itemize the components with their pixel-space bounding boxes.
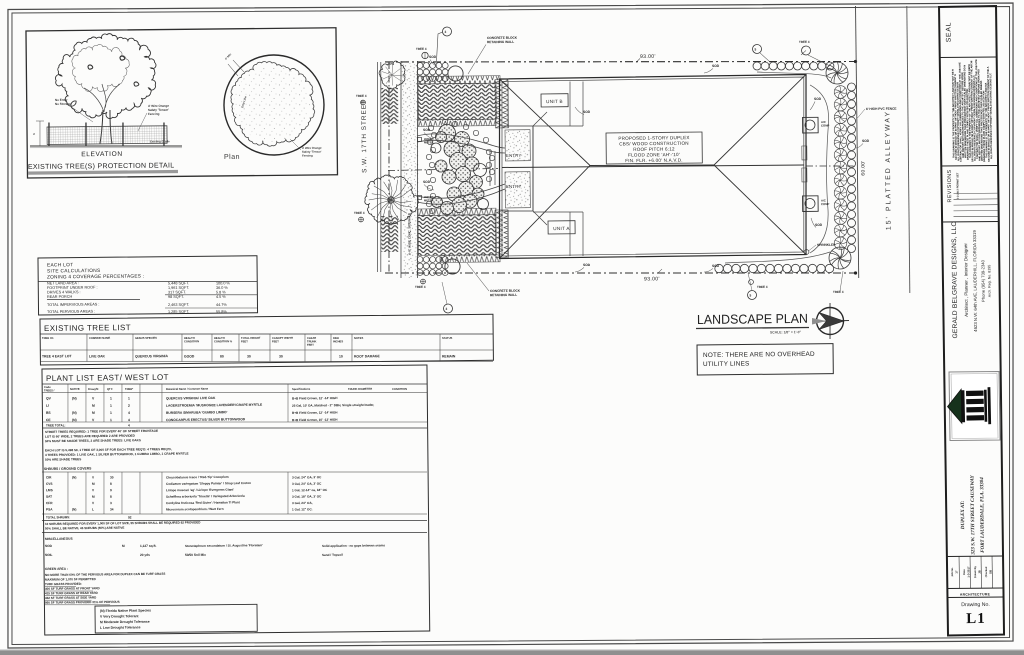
svg-text:2: 2 [128,404,130,408]
svg-text:BS: BS [46,411,51,415]
svg-text:60.00': 60.00' [860,160,866,175]
svg-text:Date: Date [962,569,966,575]
svg-text:CONDITION: CONDITION [184,339,199,343]
svg-text:Microsorum scolopendrium / War: Microsorum scolopendrium / Wart Fern [166,507,224,512]
svg-text:1,285 SQFT.: 1,285 SQFT. [168,310,189,314]
svg-text:1-3-2017: 1-3-2017 [966,566,970,578]
svg-text:CONDITION: CONDITION [392,387,407,391]
svg-text:CIR: CIR [46,475,52,479]
svg-text:SOIL: SOIL [45,553,53,557]
svg-text:36.0 %: 36.0 % [216,286,228,290]
svg-text:ELEVATION: ELEVATION [81,151,123,158]
svg-text:SHRUBS / GROUND COVERS: SHRUBS / GROUND COVERS [44,467,92,472]
svg-text:DUPLEX AT:: DUPLEX AT: [961,500,966,530]
svg-text:93.00': 93.00' [640,54,656,60]
svg-text:17: 17 [954,570,958,574]
svg-text:Specifications: Specifications [292,387,311,391]
svg-text:B+B Field Grown, 12' -14' HIGH: B+B Field Grown, 12' -14' HIGH [292,410,338,414]
svg-text:CONOCARPUS ERECTUS/ SILVER BUT: CONOCARPUS ERECTUS/ SILVER BUTTONWOOD [166,417,246,422]
svg-text:B+B Field Grown, 12' -14' HIGH: B+B Field Grown, 12' -14' HIGH [292,396,338,400]
svg-text:1 Gal, 12-14" oa, 18" OC: 1 Gal, 12-14" oa, 18" OC [292,488,328,492]
svg-text:REMAIN: REMAIN [442,354,456,358]
svg-text:SCALE: 1/8" = 1'-0": SCALE: 1/8" = 1'-0" [770,330,801,334]
svg-text:(N): (N) [72,411,77,415]
svg-text:SOD: SOD [45,544,53,548]
svg-text:CANOPY WIDTH: CANOPY WIDTH [272,336,293,340]
svg-text:SOD: SOD [423,180,431,184]
svg-text:3: 3 [444,30,446,34]
svg-text:METER: METER [424,198,434,202]
svg-text:RETAINING WALL: RETAINING WALL [487,40,514,44]
svg-text:5.8 %: 5.8 % [216,290,226,294]
svg-text:Drawing No.: Drawing No. [961,602,990,608]
svg-text:55.8%: 55.8% [216,310,227,314]
svg-text:323 S.W. 17TH STREET CAUSEWAY: 323 S.W. 17TH STREET CAUSEWAY [971,474,977,555]
svg-text:1 Gal, 12" OC.: 1 Gal, 12" OC. [292,507,313,511]
svg-text:M: M [92,482,95,486]
svg-text:1: 1 [110,418,112,422]
svg-text:COMP: COMP [821,124,830,128]
svg-text:1: 1 [110,396,112,400]
svg-text:ROOT DAMAGE: ROOT DAMAGE [354,354,381,358]
svg-text:Fencing: Fencing [302,153,313,157]
svg-text:REAR PORCH: REAR PORCH [47,295,73,299]
svg-text:1,961 SQFT.: 1,961 SQFT. [168,286,189,290]
svg-text:NOTES: NOTES [354,336,364,340]
svg-text:1,127 sq.ft.: 1,127 sq.ft. [140,544,157,548]
svg-text:15' PLATTED ALLEYWAY: 15' PLATTED ALLEYWAY [884,110,892,230]
svg-text:Sand / Topsoil: Sand / Topsoil [322,553,343,557]
svg-text:30: 30 [110,475,114,479]
svg-text:6' HIGH PVC FENCE: 6' HIGH PVC FENCE [866,107,897,111]
svg-text:(N): (N) [72,507,76,511]
svg-text:Liriope muscari 'ag' / Liriope: Liriope muscari 'ag' / Liriope 'Evergree… [166,488,234,493]
svg-text:Checked: Checked [984,566,988,577]
svg-text:30: 30 [279,354,283,358]
svg-text:SOD: SOD [423,128,431,132]
svg-text:2-2-2017 PERMIT SET: 2-2-2017 PERMIT SET [955,172,959,199]
svg-text:SOD: SOD [862,139,870,143]
svg-text:TOTAL PERVIOUS AREAS :: TOTAL PERVIOUS AREAS : [47,309,95,314]
svg-text:TOTAL IMPERVIOUS AREAS :: TOTAL IMPERVIOUS AREAS : [47,302,99,307]
svg-text:1: 1 [110,411,112,415]
svg-text:ENTRY: ENTRY [506,184,522,189]
svg-text:COMP: COMP [821,202,830,206]
svg-text:SOD: SOD [583,263,591,267]
svg-text:LMS: LMS [46,488,53,492]
svg-text:GENUS SPECIES: GENUS SPECIES [135,336,157,340]
svg-text:FORT LAUDERDALE, FLA. 33304: FORT LAUDERDALE, FLA. 33304 [980,477,986,553]
svg-text:3 Gal, 18" OA, 3' OC: 3 Gal, 18" OA, 3' OC [292,494,322,498]
svg-text:34: 34 [110,507,114,511]
svg-text:M: M [122,544,125,548]
svg-text:GERALD BELGRAVE DESIGNS, LLC: GERALD BELGRAVE DESIGNS, LLC [951,222,959,339]
svg-text:25 Gal, 10' OA, Matched - 2" D: 25 Gal, 10' OA, Matched - 2" DBH, Single… [292,403,374,408]
svg-text:TREE*: TREE* [125,387,134,391]
svg-text:INCHES: INCHES [333,339,343,343]
svg-text:BURSERA SIMARUBA 'GUMBO LIMBO': BURSERA SIMARUBA 'GUMBO LIMBO' [166,410,228,415]
svg-text:NATIVE: NATIVE [70,387,80,391]
svg-text:Fencing: Fencing [148,112,160,116]
svg-text:L: L [92,507,94,511]
svg-text:3: 3 [110,501,112,505]
svg-text:100.0 %: 100.0 % [216,281,231,285]
svg-text:TREES /: TREES / [44,388,55,392]
svg-text:(N) Florida Native Plant Spec: (N) Florida Native Plant Species [100,608,151,613]
svg-text:10: 10 [339,354,343,358]
svg-text:FEET: FEET [307,343,314,347]
svg-text:20 yds: 20 yds [140,553,150,557]
svg-text:CBS/ WOOD CONSTRUCTION: CBS/ WOOD CONSTRUCTION [619,141,689,147]
svg-text:44.7%: 44.7% [216,303,227,307]
svg-text:ARCHITECTURE: ARCHITECTURE [960,592,991,596]
svg-text:COMMON NAME: COMMON NAME [89,336,110,340]
svg-text:TREE 4: TREE 4 [354,211,365,215]
svg-text:STATUS: STATUS [442,336,453,340]
svg-text:Existing Grade: Existing Grade [150,139,170,143]
svg-text:SPRINKLER: SPRINKLER [817,243,836,247]
svg-text:SOD: SOD [815,223,823,227]
svg-text:ENTRY: ENTRY [506,153,522,158]
svg-text:SEAL: SEAL [945,22,952,43]
svg-text:4: 4 [128,411,130,415]
svg-text:TREE 4: TREE 4 [415,285,426,289]
svg-text:Phone (954) 739-2340: Phone (954) 739-2340 [980,259,985,302]
svg-text:Stenotaphrum secundatum / St.: Stenotaphrum secundatum / St. Augustine … [185,543,263,548]
svg-text:M: M [92,404,95,408]
svg-text:GOOD: GOOD [184,354,195,358]
svg-text:SITE CALCULATIONS: SITE CALCULATIONS [47,268,101,275]
svg-text:8: 8 [110,495,112,499]
svg-text:ZONING 4 COVERAGE PERCENTAGES: ZONING 4 COVERAGE PERCENTAGES : [47,273,144,280]
svg-text:4: 4 [128,418,130,422]
svg-text:QTY.: QTY. [107,387,113,391]
svg-text:EXISTING TREE LIST: EXISTING TREE LIST [44,323,131,333]
svg-text:Schefflera arboricola 'Trinett: Schefflera arboricola 'Trinette' / Varie… [166,494,245,499]
svg-text:Plan: Plan [224,154,240,161]
svg-text:8: 8 [110,482,112,486]
svg-text:(N): (N) [72,475,76,479]
svg-text:98 SQFT.: 98 SQFT. [168,295,184,299]
svg-text:TREE 4: TREE 4 [416,47,427,51]
svg-text:FEET: FEET [272,339,279,343]
svg-text:(N): (N) [72,418,77,422]
svg-text:50% ARE SHADE TREES: 50% ARE SHADE TREES [45,457,81,461]
svg-text:L Low Drought Tolerance: L Low Drought Tolerance [100,625,141,629]
svg-text:TREE 4: TREE 4 [757,285,768,289]
svg-text:MAXIMUM OF 1,070 SF PERMITTED: MAXIMUM OF 1,070 SF PERMITTED [45,577,97,582]
svg-text:3 Gal, 24" OA, 3' OC: 3 Gal, 24" OA, 3' OC [292,482,322,486]
svg-text:SOD: SOD [712,64,720,68]
svg-text:50/50 Soil Mix: 50/50 Soil Mix [185,553,206,557]
svg-text:L1: L1 [966,611,986,627]
svg-text:3 Gal, 24" OA, 3' OC: 3 Gal, 24" OA, 3' OC [292,475,322,479]
svg-text:TOTAL SHRUBS:: TOTAL SHRUBS: [46,515,70,519]
svg-text:QUERCUS VIRGINIA/ LIVE OAK: QUERCUS VIRGINIA/ LIVE OAK [166,396,216,401]
svg-text:TREE 4: TREE 4 [799,40,810,44]
svg-text:M: M [92,495,95,499]
svg-text:TREE TOTAL:: TREE TOTAL: [46,423,66,427]
svg-text:PLANT LIST EAST/ WEST LOT: PLANT LIST EAST/ WEST LOT [46,373,169,383]
svg-text:UNIT B: UNIT B [546,99,563,104]
svg-text:QV: QV [46,396,52,400]
svg-text:4'-0" WIDE CONC. SIDEWALK: 4'-0" WIDE CONC. SIDEWALK [407,212,411,255]
svg-text:CE: CE [46,418,51,422]
svg-text:FEET: FEET [241,339,248,343]
svg-text:METER: METER [424,140,434,144]
svg-text:92: 92 [128,515,132,519]
svg-text:3: 3 [445,307,447,311]
svg-text:MISCELLANEOUS: MISCELLANEOUS [45,537,73,541]
svg-text:TREE 4: TREE 4 [356,94,367,98]
svg-text:Architect , Planner , Interior: Architect , Planner , Interior Designer [963,243,969,317]
svg-text:RETAINING WALL: RETAINING WALL [490,293,517,297]
svg-text:9: 9 [110,488,112,492]
svg-text:50% SHALL BE NATIVE, 46 SHRUBS: 50% SHALL BE NATIVE, 46 SHRUBS (50%) ARE… [45,526,124,531]
svg-text:V Very Drought Tolerant: V Very Drought Tolerant [100,614,139,618]
svg-text:CFR: CFR [46,501,53,505]
svg-text:1: 1 [128,396,130,400]
svg-text:REVISIONS: REVISIONS [947,169,953,202]
svg-text:NOTE: THERE ARE NO OVERHEAD: NOTE: THERE ARE NO OVERHEAD [703,351,815,359]
svg-text:5: 5 [754,47,756,51]
svg-text:FIN. FLR. +6.00' N.A.V.D.: FIN. FLR. +6.00' N.A.V.D. [625,158,682,164]
svg-text:Arch. Reg. No. 8195: Arch. Reg. No. 8195 [987,265,991,298]
svg-text:Drawn By: Drawn By [973,565,977,578]
svg-text:Botanical Name / Common Name: Botanical Name / Common Name [166,387,209,391]
svg-text:CVS: CVS [46,482,53,486]
svg-text:SAT: SAT [46,495,52,499]
svg-text:93.00': 93.00' [644,276,660,282]
svg-text:1: 1 [110,404,112,408]
svg-text:EACH LOT: EACH LOT [47,262,73,268]
svg-text:4': 4' [33,132,36,136]
svg-text:30: 30 [247,354,251,358]
svg-text:CONDITION %: CONDITION % [214,339,233,343]
svg-text:Drought: Drought [88,387,99,391]
svg-text:UTILITY LINES: UTILITY LINES [703,361,750,368]
svg-text:3 Gal, 24" OA,: 3 Gal, 24" OA, [292,501,313,505]
svg-text:SOD: SOD [429,55,437,59]
svg-text:(N): (N) [72,396,77,400]
svg-text:Chrysobalanus icaco / 'Red-Tip: Chrysobalanus icaco / 'Red-Tip' Cocoplum [166,475,229,480]
svg-text:2,463 SQFT.: 2,463 SQFT. [168,303,189,307]
svg-text:5: 5 [749,293,751,297]
svg-text:LANDSCAPE PLAN: LANDSCAPE PLAN [697,311,808,327]
svg-text:PSA: PSA [46,507,53,511]
svg-text:SOD: SOD [583,110,591,114]
svg-text:M Moderate Drought Tolerance: M Moderate Drought Tolerance [100,620,150,625]
svg-text:4: 4 [128,423,130,427]
svg-text:QUERCUS VIRGINIA: QUERCUS VIRGINIA [135,354,169,358]
svg-text:950 SF TURF GRASS PROVIDED 31%: 950 SF TURF GRASS PROVIDED 31% OF PERVIO… [45,600,120,605]
svg-text:GREEN AREA :: GREEN AREA : [45,567,68,571]
svg-text:No Storage: No Storage [55,102,71,106]
svg-text:TOTAL HEIGHT: TOTAL HEIGHT [241,336,261,340]
svg-text:TRUNK DIAMETER: TRUNK DIAMETER [348,387,372,391]
svg-text:LIVE OAK: LIVE OAK [89,354,106,358]
svg-text:TREE I.D.: TREE I.D. [42,336,54,340]
svg-text:Job No.: Job No. [950,567,954,577]
svg-text:GB: GB [989,570,993,574]
svg-text:B+B Field Grown, 10' -12' HIGH: B+B Field Grown, 10' -12' HIGH [292,418,338,422]
svg-text:UNIT A: UNIT A [553,226,570,231]
svg-text:4623 N.W. 64th AVE, LAUDERHILL: 4623 N.W. 64th AVE, LAUDERHILL, FLORIDA … [972,230,978,332]
svg-text:4.5 %: 4.5 % [216,295,226,299]
svg-text:JB: JB [978,570,982,574]
svg-text:TREE 4: TREE 4 [833,290,844,294]
svg-text:S.W. 17TH STREET: S.W. 17TH STREET [361,99,369,173]
svg-text:LI: LI [46,404,49,408]
svg-text:TREE 4 EAST LOT: TREE 4 EAST LOT [42,354,73,358]
svg-text:SOD: SOD [814,97,822,101]
svg-text:Cordyline fruticosa 'Red Siste: Cordyline fruticosa 'Red Sister' / Hawai… [166,500,240,505]
svg-text:M: M [92,411,95,415]
svg-text:SOD: SOD [712,264,720,268]
svg-text:ROOF PITCH 6:12: ROOF PITCH 6:12 [633,146,675,151]
svg-text:Solid application - no gaps be: Solid application - no gaps between seam… [322,543,385,548]
svg-text:80: 80 [220,354,224,358]
